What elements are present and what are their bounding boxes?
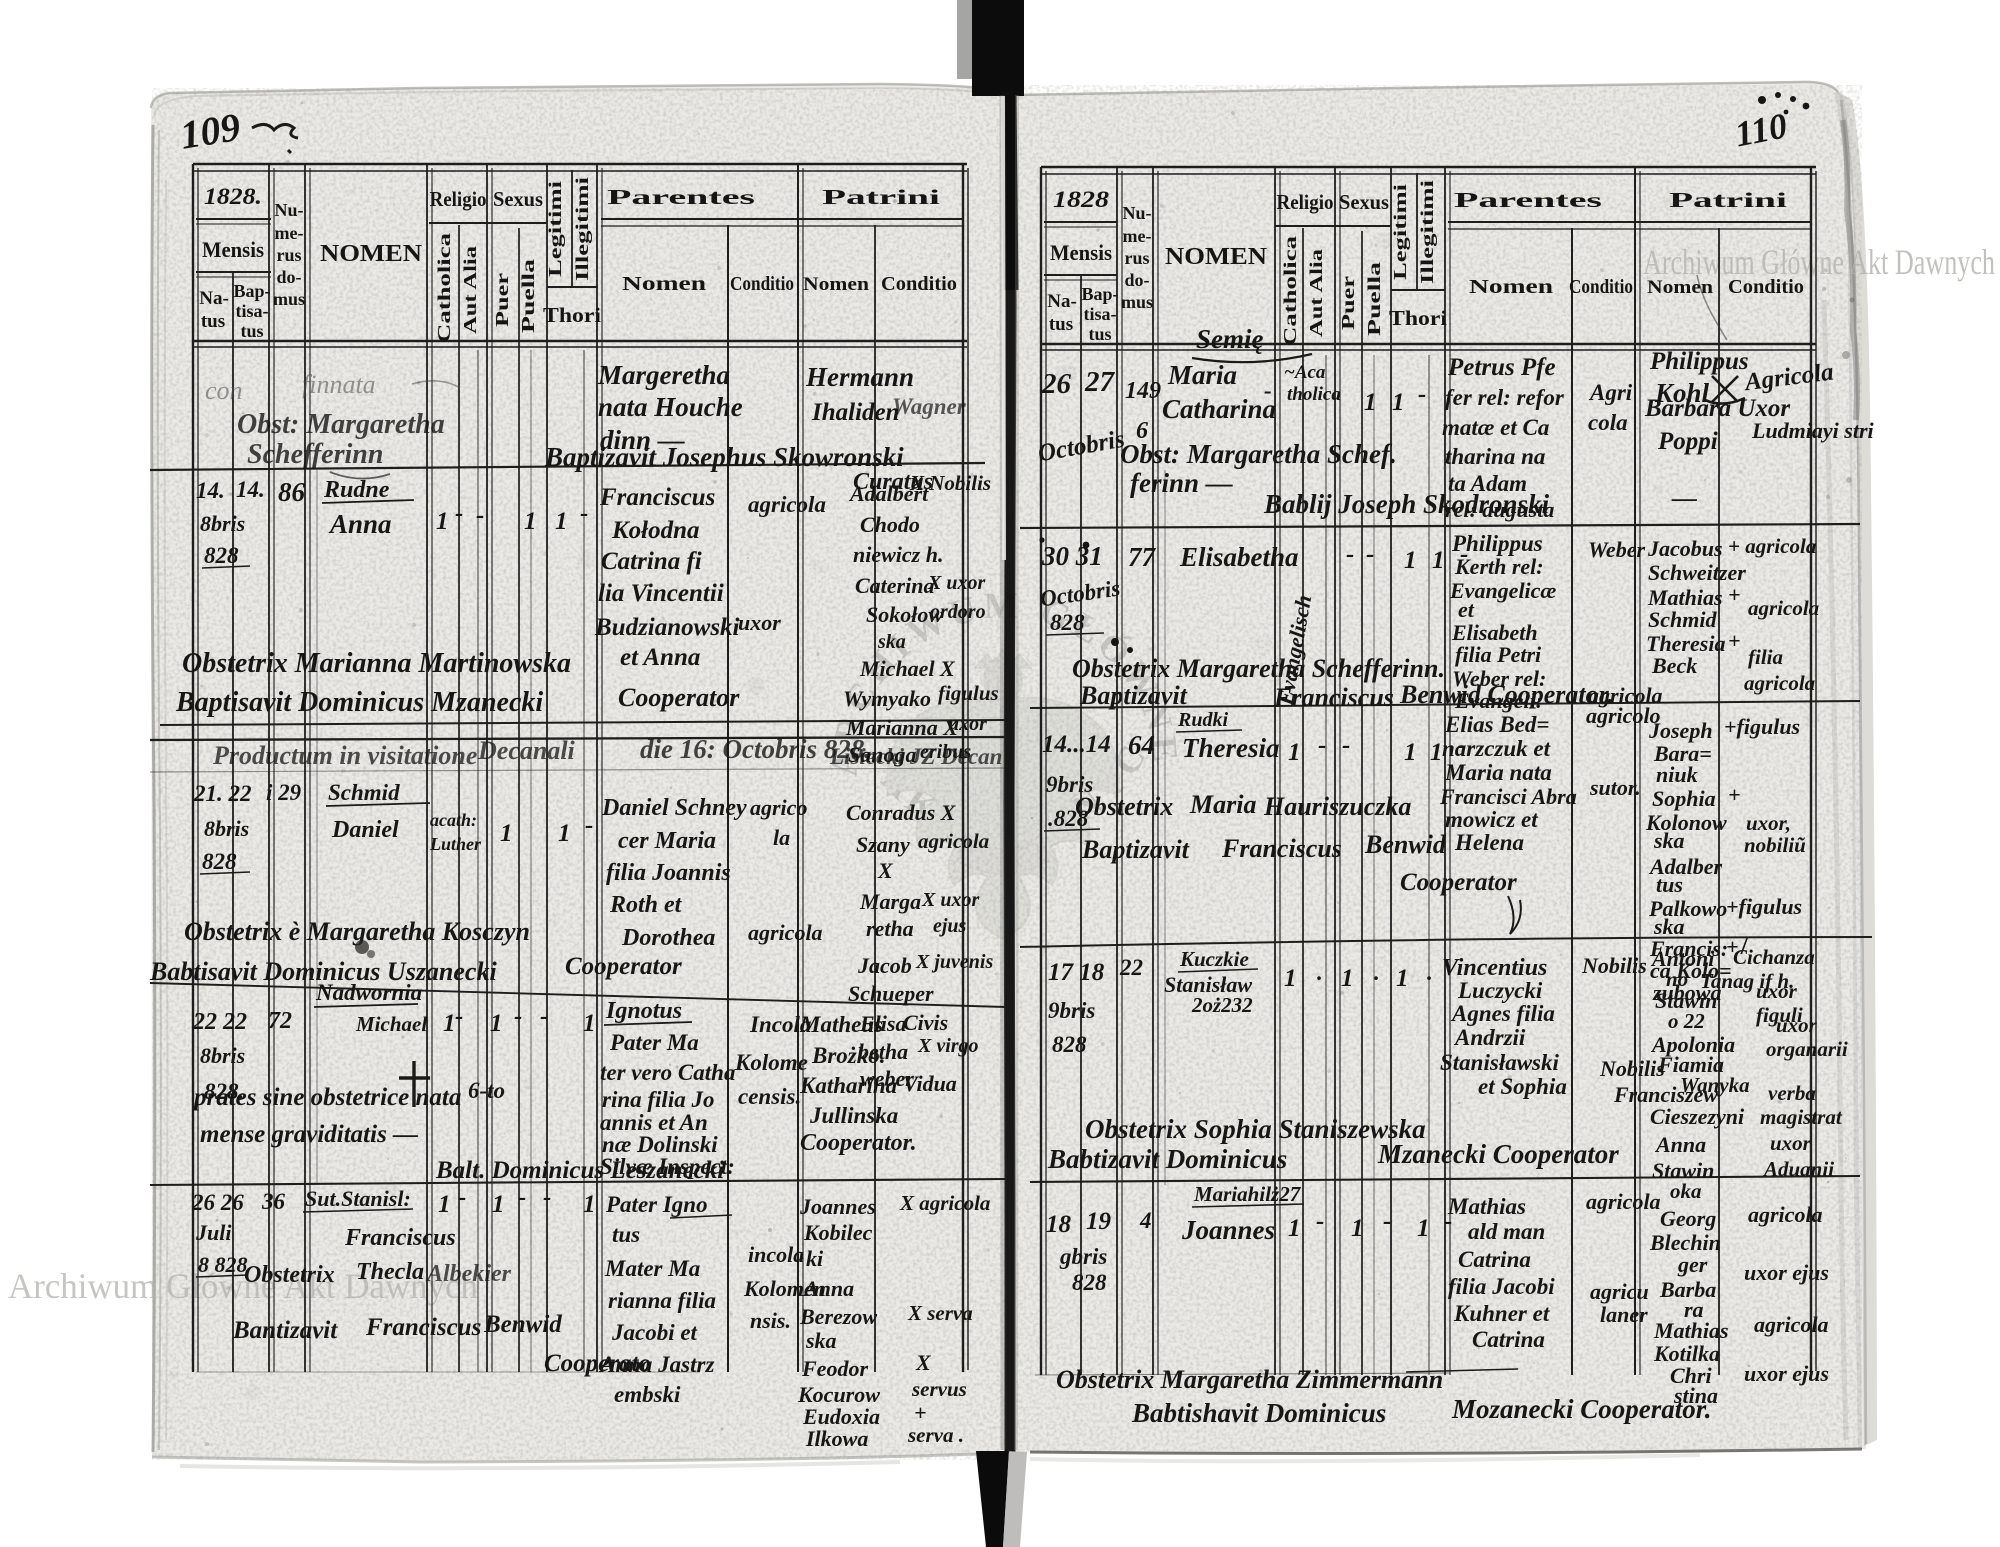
svg-text:Bap-: Bap- [1081, 284, 1118, 304]
svg-text:Kuczkie: Kuczkie [1179, 947, 1249, 971]
svg-text:Nu-: Nu- [274, 200, 303, 220]
svg-text:servus: servus [911, 1377, 967, 1401]
svg-text:uxor: uxor [1770, 1131, 1812, 1155]
svg-text:Berezow: Berezow [799, 1304, 877, 1329]
svg-text:incola: incola [748, 1242, 804, 1267]
svg-text:1: 1 [1417, 1215, 1430, 1242]
svg-text:organarii: organarii [1766, 1037, 1848, 1061]
svg-text:14...14: 14...14 [1042, 731, 1111, 758]
svg-text:Conditio: Conditio [881, 273, 957, 295]
svg-text:64: 64 [1128, 730, 1155, 760]
svg-text:Agnes filia: Agnes filia [1450, 1001, 1555, 1026]
svg-text:agrico: agrico [750, 795, 807, 820]
svg-text:agricola: agricola [918, 829, 989, 853]
svg-text:Rudki: Rudki [1177, 709, 1228, 731]
svg-text:Illegitimi: Illegitimi [1417, 180, 1437, 284]
svg-text:uxor: uxor [738, 610, 781, 635]
svg-text:~Aca: ~Aca [1284, 362, 1326, 383]
svg-text:-: - [1366, 541, 1374, 568]
svg-text:Joseph: Joseph [1648, 718, 1713, 743]
svg-text:+: + [1728, 628, 1741, 653]
svg-text:-: - [540, 1003, 548, 1030]
svg-text:1: 1 [492, 1191, 505, 1218]
svg-text:prates sine obstetrice nata: prates sine obstetrice nata [192, 1084, 461, 1111]
svg-text:8bris: 8bris [204, 816, 249, 841]
svg-text:sutor.: sutor. [1589, 775, 1641, 800]
svg-text:Obstetrix: Obstetrix [244, 1262, 335, 1288]
svg-text:serva .: serva . [907, 1423, 964, 1447]
svg-text:Luther: Luther [429, 834, 482, 854]
svg-text:Catholica: Catholica [1280, 236, 1300, 346]
svg-text:Jacobus: Jacobus [1647, 536, 1723, 561]
svg-text:Philippus: Philippus [1451, 531, 1543, 556]
svg-text:Philippus: Philippus [1649, 348, 1749, 375]
svg-text:Cooperator: Cooperator [565, 953, 682, 980]
svg-text:X Nobilis: X Nobilis [909, 471, 991, 495]
svg-text:Nu-: Nu- [1122, 203, 1151, 223]
svg-text:Lisiecki JZ Decan: Lisiecki JZ Decan [829, 744, 1002, 769]
svg-text:Conradus X: Conradus X [846, 800, 957, 825]
svg-text:Nobilis: Nobilis [1599, 1056, 1665, 1081]
svg-text:agricola: agricola [748, 492, 826, 517]
svg-text:Baptizavit: Baptizavit [1079, 681, 1188, 710]
svg-text:X: X [915, 1350, 932, 1375]
svg-text:Conditio: Conditio [730, 273, 794, 295]
svg-text:Georg: Georg [1660, 1206, 1716, 1231]
svg-text:109: 109 [177, 104, 243, 158]
svg-text:Sexus: Sexus [1339, 190, 1389, 214]
svg-text:77: 77 [1128, 542, 1157, 572]
svg-text:con: con [205, 376, 243, 405]
svg-text:Mathias: Mathias [1447, 1194, 1526, 1219]
svg-text:-: - [455, 1003, 463, 1030]
svg-text:1: 1 [443, 1010, 456, 1037]
svg-text:Hauriszuczka: Hauriszuczka [1263, 792, 1411, 821]
svg-text:Rudne: Rudne [323, 477, 390, 503]
svg-text:1828: 1828 [1053, 187, 1110, 212]
svg-text:Obstetrix Sophia Staniszewska: Obstetrix Sophia Staniszewska [1085, 1114, 1426, 1144]
svg-text:1: 1 [436, 508, 449, 535]
svg-text:149: 149 [1125, 378, 1161, 404]
svg-text:magistrat: magistrat [1760, 1105, 1843, 1129]
svg-text:Catrina: Catrina [1458, 1247, 1531, 1272]
svg-text:agricola: agricola [1748, 596, 1819, 620]
svg-text:1: 1 [558, 820, 571, 847]
svg-text:Sexus: Sexus [493, 187, 543, 211]
svg-text:Vidua: Vidua [903, 1071, 957, 1096]
svg-text:Albekier: Albekier [425, 1261, 512, 1287]
svg-text:Puer: Puer [1338, 276, 1358, 330]
svg-text:1: 1 [490, 1010, 503, 1037]
svg-text:Matheus: Matheus [799, 1012, 883, 1037]
svg-text:Archiwum Główne Akt Dawnych: Archiwum Główne Akt Dawnych [1643, 242, 1995, 282]
svg-text:Ignotus: Ignotus [605, 998, 682, 1024]
svg-text:ki: ki [806, 1246, 824, 1271]
svg-text:Obstetrix: Obstetrix [1075, 792, 1173, 821]
svg-text:8 828: 8 828 [198, 1252, 248, 1277]
svg-text:Franciscus: Franciscus [344, 1225, 456, 1251]
svg-text:Ludmiayi stri: Ludmiayi stri [1751, 418, 1875, 443]
svg-text:me-: me- [1123, 226, 1152, 246]
svg-text:1: 1 [1396, 965, 1409, 992]
svg-text:embski: embski [614, 1382, 681, 1407]
svg-text:matæ et Ca: matæ et Ca [1442, 415, 1549, 440]
svg-text:86: 86 [278, 477, 306, 507]
svg-text:et Sophia: et Sophia [1478, 1074, 1567, 1099]
svg-text:Franciscus: Franciscus [1273, 683, 1394, 712]
svg-text:Jacob: Jacob [857, 953, 912, 978]
svg-text:Benwid: Benwid [1364, 830, 1447, 859]
svg-text:et Anna: et Anna [620, 644, 700, 671]
svg-text:mus: mus [1121, 292, 1153, 312]
svg-text:tus: tus [240, 321, 263, 341]
svg-text:X uxor: X uxor [921, 889, 979, 911]
svg-text:Kobilec: Kobilec [803, 1220, 873, 1245]
svg-text:-: - [1316, 1208, 1324, 1235]
svg-text:+ agricola: + agricola [1728, 534, 1816, 558]
svg-text:agricola: agricola [1754, 1312, 1829, 1337]
svg-text:Obstetrix è Margaretha Kosczyn: Obstetrix è Margaretha Kosczyn [184, 917, 530, 946]
svg-text:Cooperator: Cooperator [618, 683, 740, 712]
svg-text:tholica: tholica [1287, 384, 1341, 405]
svg-text:+: + [1728, 782, 1741, 807]
svg-text:Obstetrix Margaretha Zimmerman: Obstetrix Margaretha Zimmermann [1056, 1365, 1443, 1394]
svg-text:Baptizavit Josephus Skowronski: Baptizavit Josephus Skowronski [544, 442, 904, 472]
svg-text:Jacobi et: Jacobi et [611, 1320, 698, 1345]
svg-text:Schmid: Schmid [1648, 607, 1717, 632]
svg-text:Cieszezyni: Cieszezyni [1650, 1104, 1745, 1129]
svg-text:tus: tus [201, 311, 225, 332]
svg-text:rus: rus [276, 245, 301, 265]
svg-text:Balt. Dominicus Leszanecki: Balt. Dominicus Leszanecki [435, 1157, 724, 1184]
svg-text:-: - [518, 1184, 526, 1211]
svg-text:ejus: ejus [933, 915, 967, 937]
svg-text:-: - [1342, 732, 1350, 759]
svg-text:Petrus Pfe: Petrus Pfe [1447, 354, 1556, 381]
svg-text:finnata: finnata [302, 370, 376, 399]
svg-text:Catholica: Catholica [434, 233, 454, 343]
svg-text:ska: ska [877, 631, 906, 653]
svg-text:oka: oka [1670, 1179, 1702, 1203]
svg-text:cola: cola [1588, 410, 1628, 435]
svg-text:tisa-: tisa- [236, 301, 269, 321]
svg-text:Semię: Semię [1196, 324, 1264, 354]
svg-text:Anna: Anna [1654, 1132, 1706, 1157]
svg-text:Pater Ma: Pater Ma [609, 1030, 699, 1055]
svg-text:Maria: Maria [1189, 790, 1256, 819]
svg-text:nsis.: nsis. [750, 1308, 791, 1333]
svg-text:Mozanecki Cooperator.: Mozanecki Cooperator. [1451, 1394, 1712, 1424]
svg-text:do-: do- [1124, 270, 1149, 290]
svg-text:uxor: uxor [948, 713, 987, 735]
svg-text:828: 828 [202, 849, 237, 874]
svg-text:1: 1 [1404, 739, 1417, 766]
svg-text:1: 1 [1284, 965, 1297, 992]
svg-text:Roth et: Roth et [609, 892, 683, 918]
svg-text:1: 1 [438, 1191, 451, 1218]
svg-text:NOMEN: NOMEN [320, 241, 423, 267]
svg-text:Patrini: Patrini [1669, 188, 1787, 212]
svg-text:ordoro: ordoro [930, 601, 986, 623]
svg-text:Civis: Civis [903, 1010, 948, 1035]
svg-text:agricola: agricola [1744, 671, 1815, 695]
svg-text:+figulus: +figulus [1724, 714, 1800, 739]
svg-text:rina filia Jo: rina filia Jo [602, 1087, 714, 1112]
svg-text:tisa-: tisa- [1084, 304, 1117, 324]
svg-text:Nomen: Nomen [622, 273, 706, 295]
svg-text:Parentes: Parentes [607, 185, 755, 209]
svg-text:Benwid: Benwid [483, 1311, 562, 1338]
svg-text:Thecla: Thecla [356, 1259, 424, 1285]
svg-text:et: et [1458, 597, 1475, 622]
svg-text:Aut Alia: Aut Alia [460, 246, 480, 334]
svg-text:laner: laner [1600, 1302, 1648, 1327]
svg-text:ska: ska [805, 1328, 837, 1353]
svg-text:-: - [1418, 381, 1426, 408]
svg-text:NOMEN: NOMEN [1165, 244, 1268, 270]
svg-text:Cooperator.: Cooperator. [800, 1130, 917, 1156]
svg-text:Ilkowa: Ilkowa [805, 1426, 868, 1451]
svg-text:Poppi: Poppi [1657, 428, 1718, 455]
svg-text:Jullinska: Jullinska [809, 1103, 898, 1128]
svg-text:Mzanecki Cooperator: Mzanecki Cooperator [1377, 1139, 1619, 1169]
svg-text:uxor,: uxor, [1746, 811, 1791, 835]
svg-text:Juli: Juli [195, 1220, 232, 1245]
svg-text:tus: tus [612, 1222, 640, 1247]
svg-text:Obstetrix Marianna Martinowska: Obstetrix Marianna Martinowska [182, 648, 571, 679]
svg-text:Kuhner et: Kuhner et [1453, 1301, 1550, 1326]
svg-text:Na-: Na- [199, 288, 229, 309]
svg-text:ald man: ald man [1468, 1219, 1545, 1244]
svg-text:-: - [585, 812, 593, 839]
svg-text:Mensis: Mensis [1050, 240, 1112, 265]
svg-text:22 22: 22 22 [192, 1009, 247, 1035]
svg-text:Legitimi: Legitimi [545, 181, 565, 277]
svg-text:36: 36 [261, 1189, 286, 1214]
svg-text:Szany: Szany [856, 832, 910, 857]
svg-text:Weber: Weber [1588, 537, 1645, 562]
svg-text:Cooperato: Cooperato [544, 1350, 651, 1377]
svg-text:Cooperator: Cooperator [1400, 869, 1517, 896]
svg-text:Aduanii: Aduanii [1762, 1157, 1834, 1181]
svg-text:-: - [543, 1184, 551, 1211]
svg-text:21. 22: 21. 22 [193, 781, 252, 806]
svg-text:6-to: 6-to [468, 1078, 505, 1103]
svg-text:figulus: figulus [938, 681, 999, 705]
svg-text:uxor ejus: uxor ejus [1744, 1260, 1829, 1285]
svg-text:Schefferinn: Schefferinn [247, 439, 383, 470]
svg-text:X juvenis: X juvenis [915, 951, 993, 973]
svg-text:Catharina: Catharina [1162, 394, 1276, 424]
svg-text:X agricola: X agricola [899, 1191, 990, 1215]
svg-text:Daniel Schney: Daniel Schney [601, 795, 747, 821]
svg-text:Mensis: Mensis [202, 237, 264, 262]
svg-text:ter vero Catha: ter vero Catha [600, 1060, 735, 1085]
svg-text:1: 1 [555, 508, 568, 535]
svg-text:1: 1 [1430, 739, 1443, 766]
svg-text:Chodo: Chodo [860, 512, 920, 537]
svg-text:Joannes: Joannes [799, 1194, 876, 1219]
svg-text:Brożko.: Brożko. [811, 1043, 886, 1068]
svg-text:nata Houche: nata Houche [598, 392, 743, 422]
svg-text:-: - [1383, 1208, 1391, 1235]
svg-text:niewicz h.: niewicz h. [853, 542, 943, 567]
svg-text:Agri: Agri [1588, 380, 1633, 405]
svg-text:filia: filia [1748, 645, 1783, 669]
svg-text:Puer: Puer [492, 273, 512, 327]
svg-text:filia Joannis: filia Joannis [606, 860, 731, 886]
svg-text:filia Petri: filia Petri [1455, 642, 1542, 667]
svg-text:Elisabetha: Elisabetha [1179, 542, 1299, 572]
svg-text:Franciscus: Franciscus [365, 1314, 481, 1341]
svg-text:tus: tus [1049, 314, 1073, 335]
svg-text:1: 1 [1351, 1215, 1364, 1242]
svg-text:X uxor: X uxor [927, 572, 985, 594]
svg-text:Mariahilż27: Mariahilż27 [1193, 1182, 1302, 1206]
svg-text:14.: 14. [236, 477, 265, 502]
svg-text:4: 4 [1139, 1208, 1152, 1233]
svg-text:nobiliũ: nobiliũ [1744, 833, 1806, 857]
svg-text:.: . [1427, 960, 1433, 985]
svg-text:cer Maria: cer Maria [618, 828, 716, 854]
svg-text:+figulus: +figulus [1726, 894, 1802, 919]
svg-text:Puella: Puella [518, 259, 538, 333]
svg-text:Nomen: Nomen [1469, 276, 1553, 298]
svg-text:uxor: uxor [1776, 1013, 1818, 1037]
svg-text:Wagner: Wagner [892, 394, 967, 419]
svg-text:ger: ger [1677, 1252, 1708, 1277]
svg-text:Illegitimi: Illegitimi [572, 177, 592, 281]
svg-text:Obst: Margaretha Schef.: Obst: Margaretha Schef. [1120, 439, 1397, 469]
svg-text:Babtishavit Dominicus: Babtishavit Dominicus [1131, 1398, 1386, 1428]
svg-text:2oż232: 2oż232 [1191, 993, 1253, 1017]
svg-text:Benwid Cooperator.: Benwid Cooperator. [1399, 680, 1614, 709]
svg-text:Legitimi: Legitimi [1390, 184, 1410, 280]
svg-text:1: 1 [583, 1191, 596, 1218]
svg-text:.: . [1374, 960, 1380, 985]
svg-text:Sophia: Sophia [1652, 786, 1716, 811]
svg-text:Marga: Marga [859, 889, 921, 914]
svg-text:Schueper: Schueper [848, 981, 934, 1006]
svg-text:Aut Alia: Aut Alia [1306, 249, 1326, 337]
svg-text:Conditio: Conditio [1728, 276, 1804, 298]
svg-text:30 31: 30 31 [1041, 541, 1103, 571]
svg-text:Productum in visitatione: Productum in visitatione [212, 741, 477, 770]
svg-text:lia Vincentii: lia Vincentii [598, 580, 724, 607]
svg-text:.: . [1317, 960, 1323, 985]
svg-text:Margeretha: Margeretha [597, 360, 730, 390]
svg-text:Conditio: Conditio [1569, 276, 1633, 298]
svg-text:8bris: 8bris [200, 1043, 245, 1068]
svg-text:Michael X: Michael X [859, 656, 956, 681]
svg-text:+: + [1728, 582, 1741, 607]
svg-text:Catrina fi: Catrina fi [601, 548, 702, 575]
svg-text:rianna filia: rianna filia [608, 1288, 716, 1313]
svg-text:Kerth rel:: Kerth rel: [1454, 554, 1544, 579]
svg-text:Maria nata: Maria nata [1444, 760, 1552, 785]
svg-text:Mater Ma: Mater Ma [604, 1256, 700, 1281]
svg-text:Francisci Abra: Francisci Abra [1439, 784, 1577, 809]
svg-text:mowicz et: mowicz et [1445, 807, 1538, 832]
svg-text:Catrina: Catrina [1472, 1327, 1545, 1352]
svg-text:-: - [514, 1003, 522, 1030]
svg-text:Schmid: Schmid [328, 780, 400, 805]
svg-text:Bap-: Bap- [233, 281, 270, 301]
svg-text:Anna: Anna [328, 509, 392, 539]
svg-text:mus: mus [273, 289, 305, 309]
svg-text:Franciscus: Franciscus [1221, 834, 1342, 863]
svg-text:Nobilis: Nobilis [1581, 953, 1647, 978]
svg-text:agricola: agricola [1586, 1189, 1661, 1214]
svg-text:Joannes: Joannes [1181, 1215, 1275, 1245]
svg-text:Kołodna: Kołodna [611, 517, 700, 544]
svg-text:Nadwornia: Nadwornia [315, 980, 422, 1005]
svg-text:Daniel: Daniel [331, 817, 399, 843]
svg-text:tharina na: tharina na [1445, 444, 1545, 469]
svg-text:Dorothea: Dorothea [621, 925, 715, 951]
svg-text:1: 1 [524, 508, 537, 535]
svg-text:Pater Igno: Pater Igno [605, 1192, 708, 1217]
svg-text:Stanisławski: Stanisławski [1440, 1050, 1559, 1075]
svg-text:27: 27 [1084, 366, 1116, 398]
svg-text:do-: do- [276, 267, 301, 287]
svg-text:1: 1 [1288, 739, 1301, 766]
svg-text:828: 828 [1052, 1032, 1087, 1057]
svg-text:Anna: Anna [802, 1276, 854, 1301]
svg-text:tus: tus [1088, 324, 1111, 344]
svg-text:Obst: Margaretha: Obst: Margaretha [237, 409, 445, 440]
svg-text:Luczycki: Luczycki [1457, 978, 1543, 1003]
svg-text:Michael: Michael [355, 1012, 427, 1036]
svg-text:Baptisavit Dominicus Mzanecki: Baptisavit Dominicus Mzanecki [175, 687, 543, 718]
svg-text:Beck: Beck [1651, 653, 1697, 678]
svg-text:Cichanza: Cichanza [1733, 945, 1815, 969]
svg-text:Bablij Joseph Skodronski: Bablij Joseph Skodronski [1263, 489, 1550, 519]
svg-text:1828.: 1828. [204, 184, 262, 209]
svg-text:narzczuk et: narzczuk et [1442, 736, 1551, 761]
svg-text:Religio: Religio [430, 187, 487, 211]
svg-text:1: 1 [1364, 389, 1377, 416]
svg-text:Nomen: Nomen [803, 274, 869, 295]
svg-text:17 18: 17 18 [1048, 959, 1105, 986]
svg-text:Obstetrix Margaretha Schefferi: Obstetrix Margaretha Schefferinn. [1072, 654, 1445, 683]
svg-text:Maria: Maria [1167, 360, 1237, 390]
svg-text:me-: me- [275, 223, 304, 243]
svg-text:Babtizavit Dominicus: Babtizavit Dominicus [1047, 1144, 1287, 1174]
svg-text:X serva: X serva [907, 1301, 973, 1325]
svg-text:X: X [877, 858, 894, 883]
svg-text:Wymyako: Wymyako [843, 686, 931, 711]
svg-text:1: 1 [583, 1010, 596, 1037]
svg-text:ska: ska [1653, 828, 1685, 853]
svg-text:Ihaliden: Ihaliden [811, 399, 900, 426]
svg-text:-: - [1264, 378, 1272, 403]
svg-text:-: - [458, 1184, 466, 1211]
svg-text:Nomen: Nomen [1647, 277, 1713, 298]
svg-text:14.: 14. [196, 478, 225, 503]
svg-text:Caterina: Caterina [855, 573, 934, 598]
svg-text:rus: rus [1124, 248, 1149, 268]
svg-text:Kolome: Kolome [734, 1050, 808, 1075]
svg-text:8bris: 8bris [200, 511, 245, 536]
svg-text:o 22: o 22 [1668, 1009, 1705, 1033]
svg-text:niuk: niuk [1656, 762, 1698, 787]
svg-text:i 29: i 29 [266, 780, 302, 805]
svg-text:1: 1 [1341, 965, 1354, 992]
svg-text:1: 1 [1392, 389, 1405, 416]
svg-text:ferinn —: ferinn — [1130, 468, 1233, 498]
svg-text:-: - [1318, 732, 1326, 759]
